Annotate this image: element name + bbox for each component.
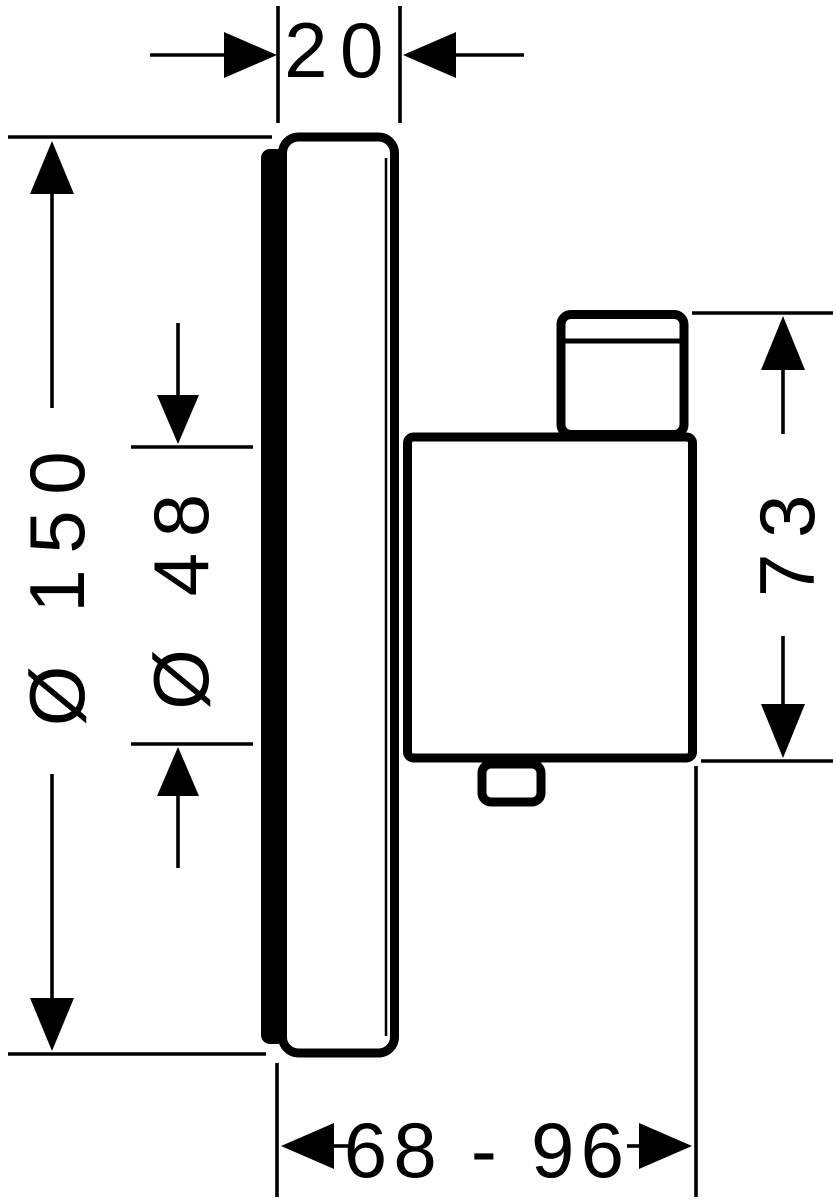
dimension-plate-depth: 20 <box>150 6 524 123</box>
arrowhead-up-icon <box>30 141 74 194</box>
valve-dimension-diagram: 20 Ø 150 Ø 48 <box>0 0 836 1200</box>
dimension-handle-diameter-label: Ø 48 <box>137 478 225 710</box>
escutcheon-plate <box>283 137 395 1053</box>
dimension-plate-depth-label: 20 <box>284 6 396 94</box>
product-outline <box>261 137 693 1053</box>
arrowhead-up-icon <box>761 316 805 370</box>
technical-drawing-canvas: 20 Ø 150 Ø 48 <box>0 0 836 1200</box>
dimension-body-height-label: 73 <box>743 479 831 597</box>
arrowhead-down-icon <box>30 998 74 1051</box>
arrowhead-left-icon <box>403 32 456 78</box>
valve-body <box>408 437 693 758</box>
stop-housing <box>561 315 684 435</box>
dimension-handle-diameter: Ø 48 <box>131 323 253 868</box>
dimension-plate-diameter-label: Ø 150 <box>13 436 101 726</box>
dimension-body-height: 73 <box>692 313 833 761</box>
arrowhead-right-icon <box>639 1123 692 1169</box>
arrowhead-right-icon <box>224 32 277 78</box>
dimension-installation-depth-label: 68 - 96 <box>344 1106 631 1194</box>
arrowhead-down-icon <box>761 704 805 758</box>
arrowhead-left-icon <box>281 1123 334 1169</box>
bottom-tab <box>482 764 541 802</box>
arrowhead-up-icon <box>157 747 199 796</box>
arrowhead-down-icon <box>157 395 199 444</box>
